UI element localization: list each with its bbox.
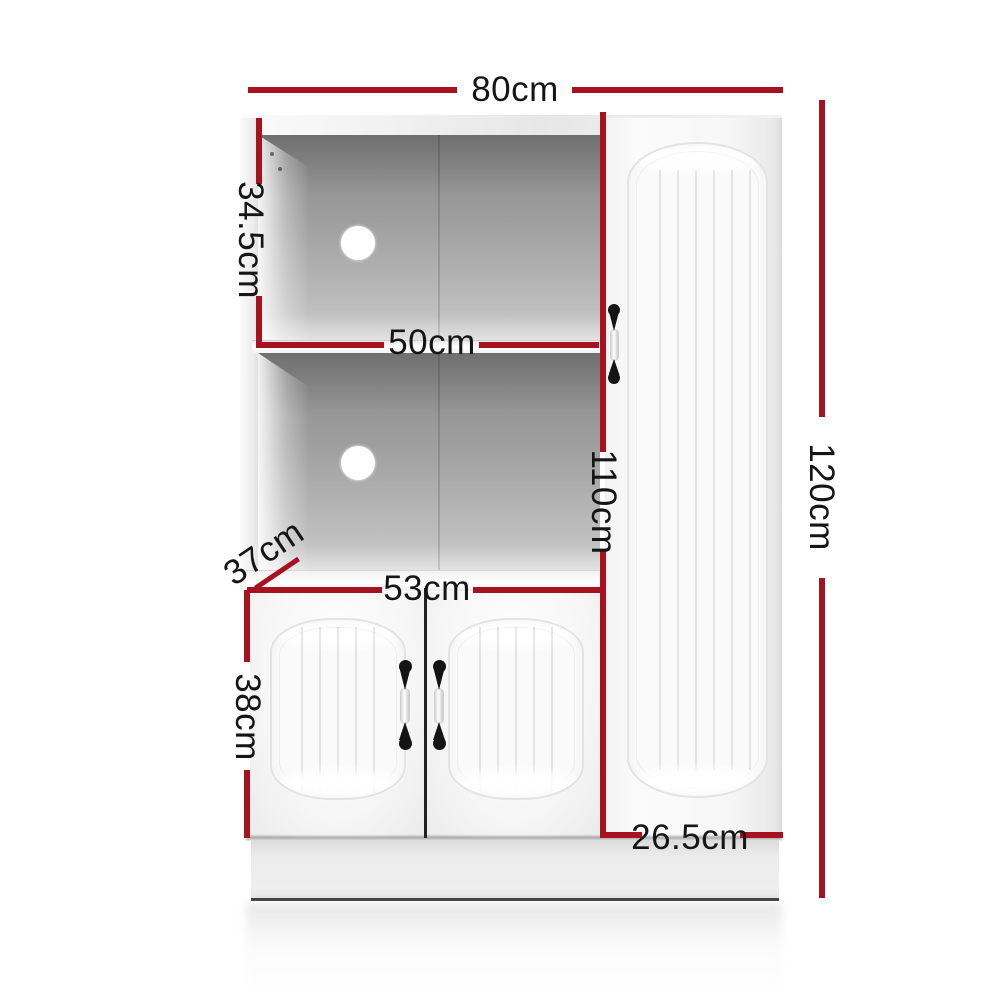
tall-door-handle [607, 304, 621, 384]
panel-highlight [455, 770, 576, 796]
handle-grip [434, 688, 444, 724]
dim-label-left-section-height: 110cm [583, 450, 623, 555]
bottom-left-door-handle [398, 660, 412, 750]
handle-taper [399, 722, 411, 740]
back-panel-seam [438, 353, 440, 570]
dim-line-overall-height-top [819, 100, 825, 417]
tall-door-arch-panel [627, 142, 768, 798]
back-panel-seam [438, 135, 440, 340]
screw-hole-dot [270, 152, 274, 156]
dim-line-bottom-width-right [473, 587, 604, 593]
tall-side-door [605, 118, 782, 838]
door-gap-seam [424, 588, 427, 838]
handle-grip [400, 688, 410, 724]
dim-line-bottom-height-top [244, 590, 250, 662]
dim-line-left-section-height-top [600, 112, 606, 452]
dim-line-bottom-height-bottom [244, 770, 250, 838]
screw-hole-dot [278, 167, 282, 171]
dim-line-shelf-width-left [262, 342, 384, 348]
dim-label-upper-shelf-height: 34.5cm [230, 181, 270, 299]
dim-line-upper-shelf-height-top [256, 118, 262, 184]
lower-shelf-compartment [258, 353, 600, 570]
dim-line-overall-height-bottom [819, 578, 825, 898]
handle-grip [610, 329, 619, 361]
compartment-floor-highlight [258, 544, 600, 570]
dim-line-overall-width-left [248, 87, 457, 93]
door-arch-panel [448, 618, 584, 800]
dim-label-overall-width: 80cm [471, 70, 559, 110]
handle-taper [609, 313, 620, 331]
panel-highlight [277, 770, 398, 796]
panel-highlight [634, 768, 760, 794]
product-dimension-diagram: 80cm 34.5cm 50cm 110cm 26.5cm 120cm 37cm… [0, 0, 1000, 1000]
handle-taper [609, 359, 620, 375]
dim-line-left-section-height-bottom [600, 551, 606, 838]
handle-taper [433, 670, 445, 690]
panel-inner-outline [279, 627, 397, 791]
cable-hole [341, 446, 375, 480]
dim-label-bottom-height: 38cm [227, 673, 267, 761]
dim-line-upper-shelf-height-bottom [256, 296, 262, 348]
bottom-right-door-handle [432, 660, 446, 750]
cable-hole [341, 226, 375, 260]
upper-shelf-compartment [258, 135, 600, 340]
floor-reflection [246, 903, 782, 998]
bottom-right-door [427, 592, 600, 838]
cabinet-illustration [0, 0, 1000, 1000]
dim-label-overall-height: 120cm [801, 443, 841, 551]
dim-line-overall-width-right [572, 87, 783, 93]
dim-label-tall-door-width: 26.5cm [631, 818, 749, 858]
dim-label-shelf-width: 50cm [388, 323, 476, 363]
handle-taper [433, 722, 445, 740]
dim-label-bottom-width: 53cm [383, 569, 471, 609]
dim-line-bottom-width-left [247, 587, 382, 593]
dim-line-shelf-width-right [479, 342, 599, 348]
handle-taper [399, 670, 411, 690]
door-arch-panel [270, 618, 406, 800]
panel-inner-outline [457, 627, 575, 791]
bottom-double-doors [245, 588, 602, 838]
panel-inner-outline [636, 151, 759, 789]
